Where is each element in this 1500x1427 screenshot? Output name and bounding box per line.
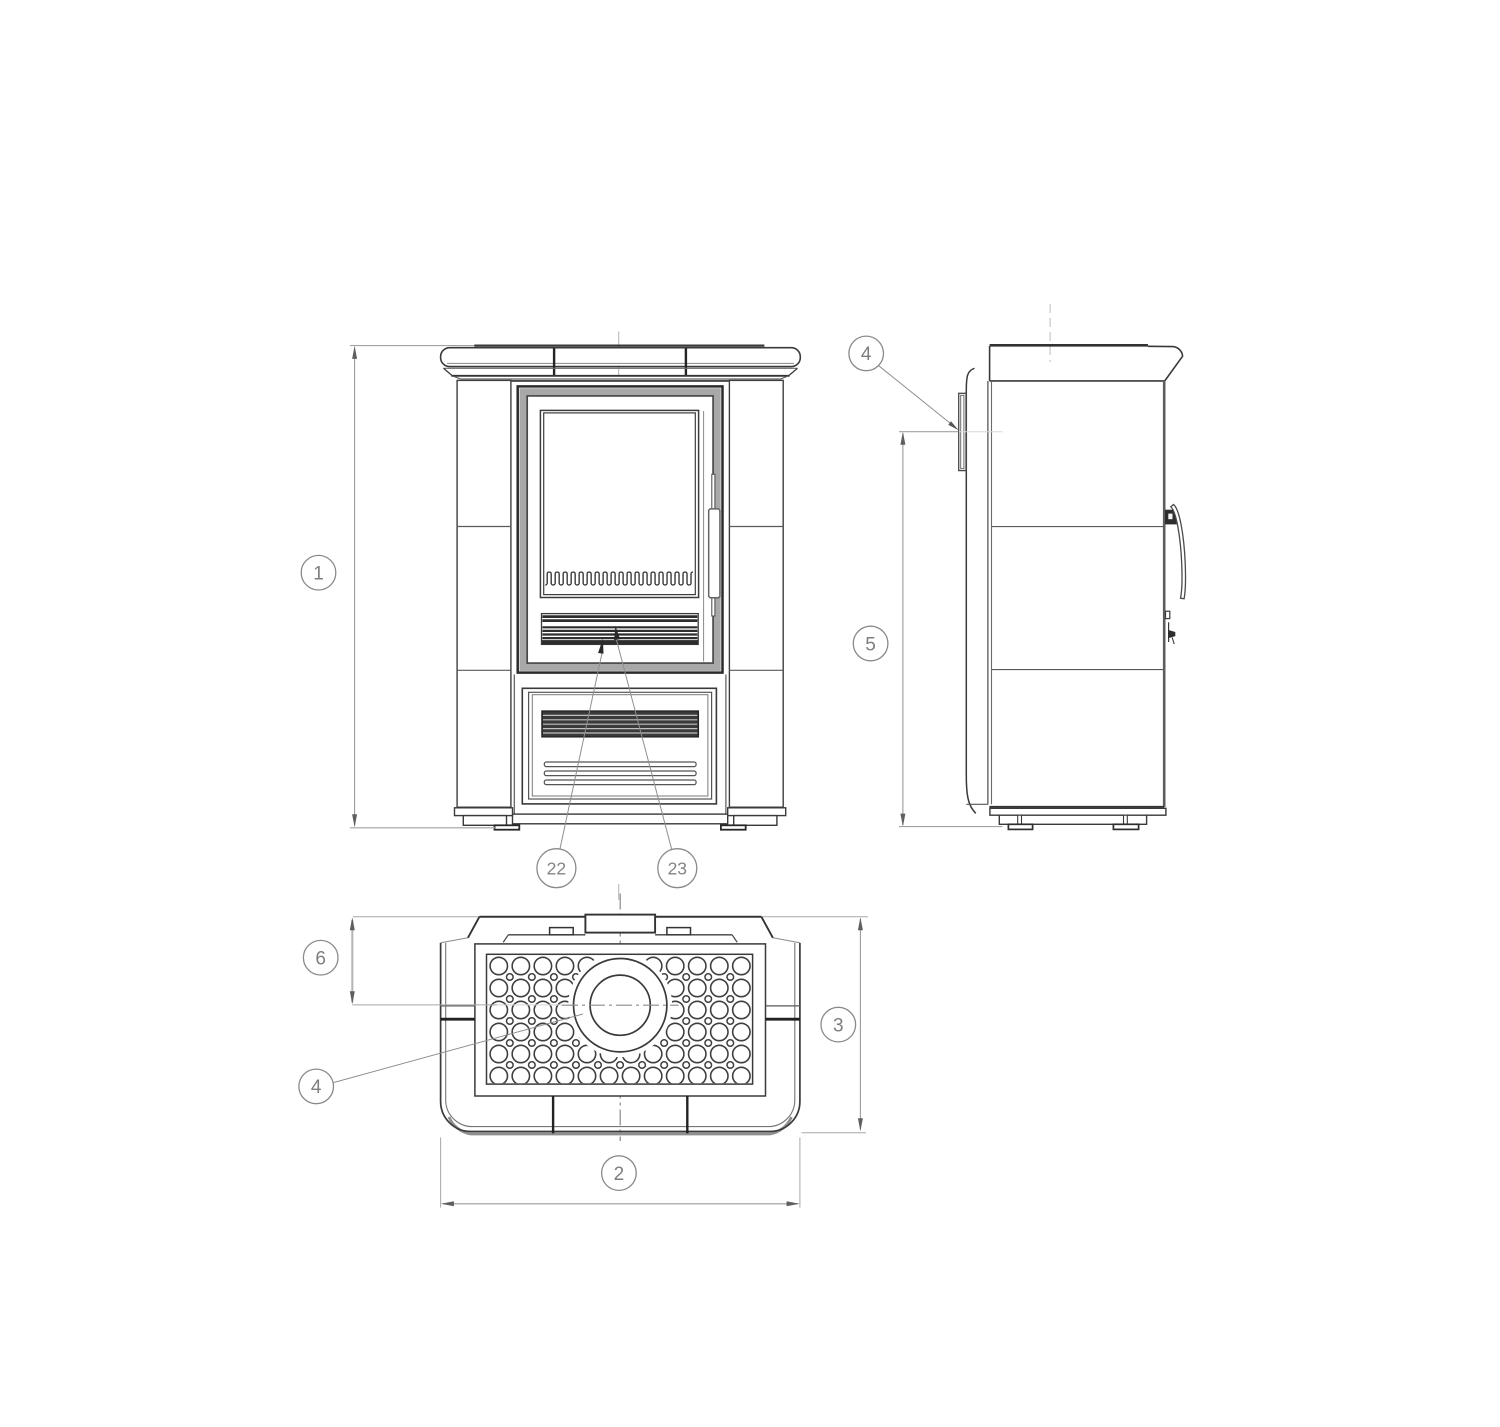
svg-text:6: 6 [315,949,326,970]
svg-text:4: 4 [861,344,872,365]
svg-text:2: 2 [614,1164,625,1185]
svg-text:23: 23 [668,859,687,879]
svg-text:22: 22 [547,859,566,879]
svg-text:5: 5 [865,634,876,655]
svg-text:4: 4 [311,1077,322,1098]
svg-text:1: 1 [313,564,324,585]
svg-text:3: 3 [833,1015,844,1036]
